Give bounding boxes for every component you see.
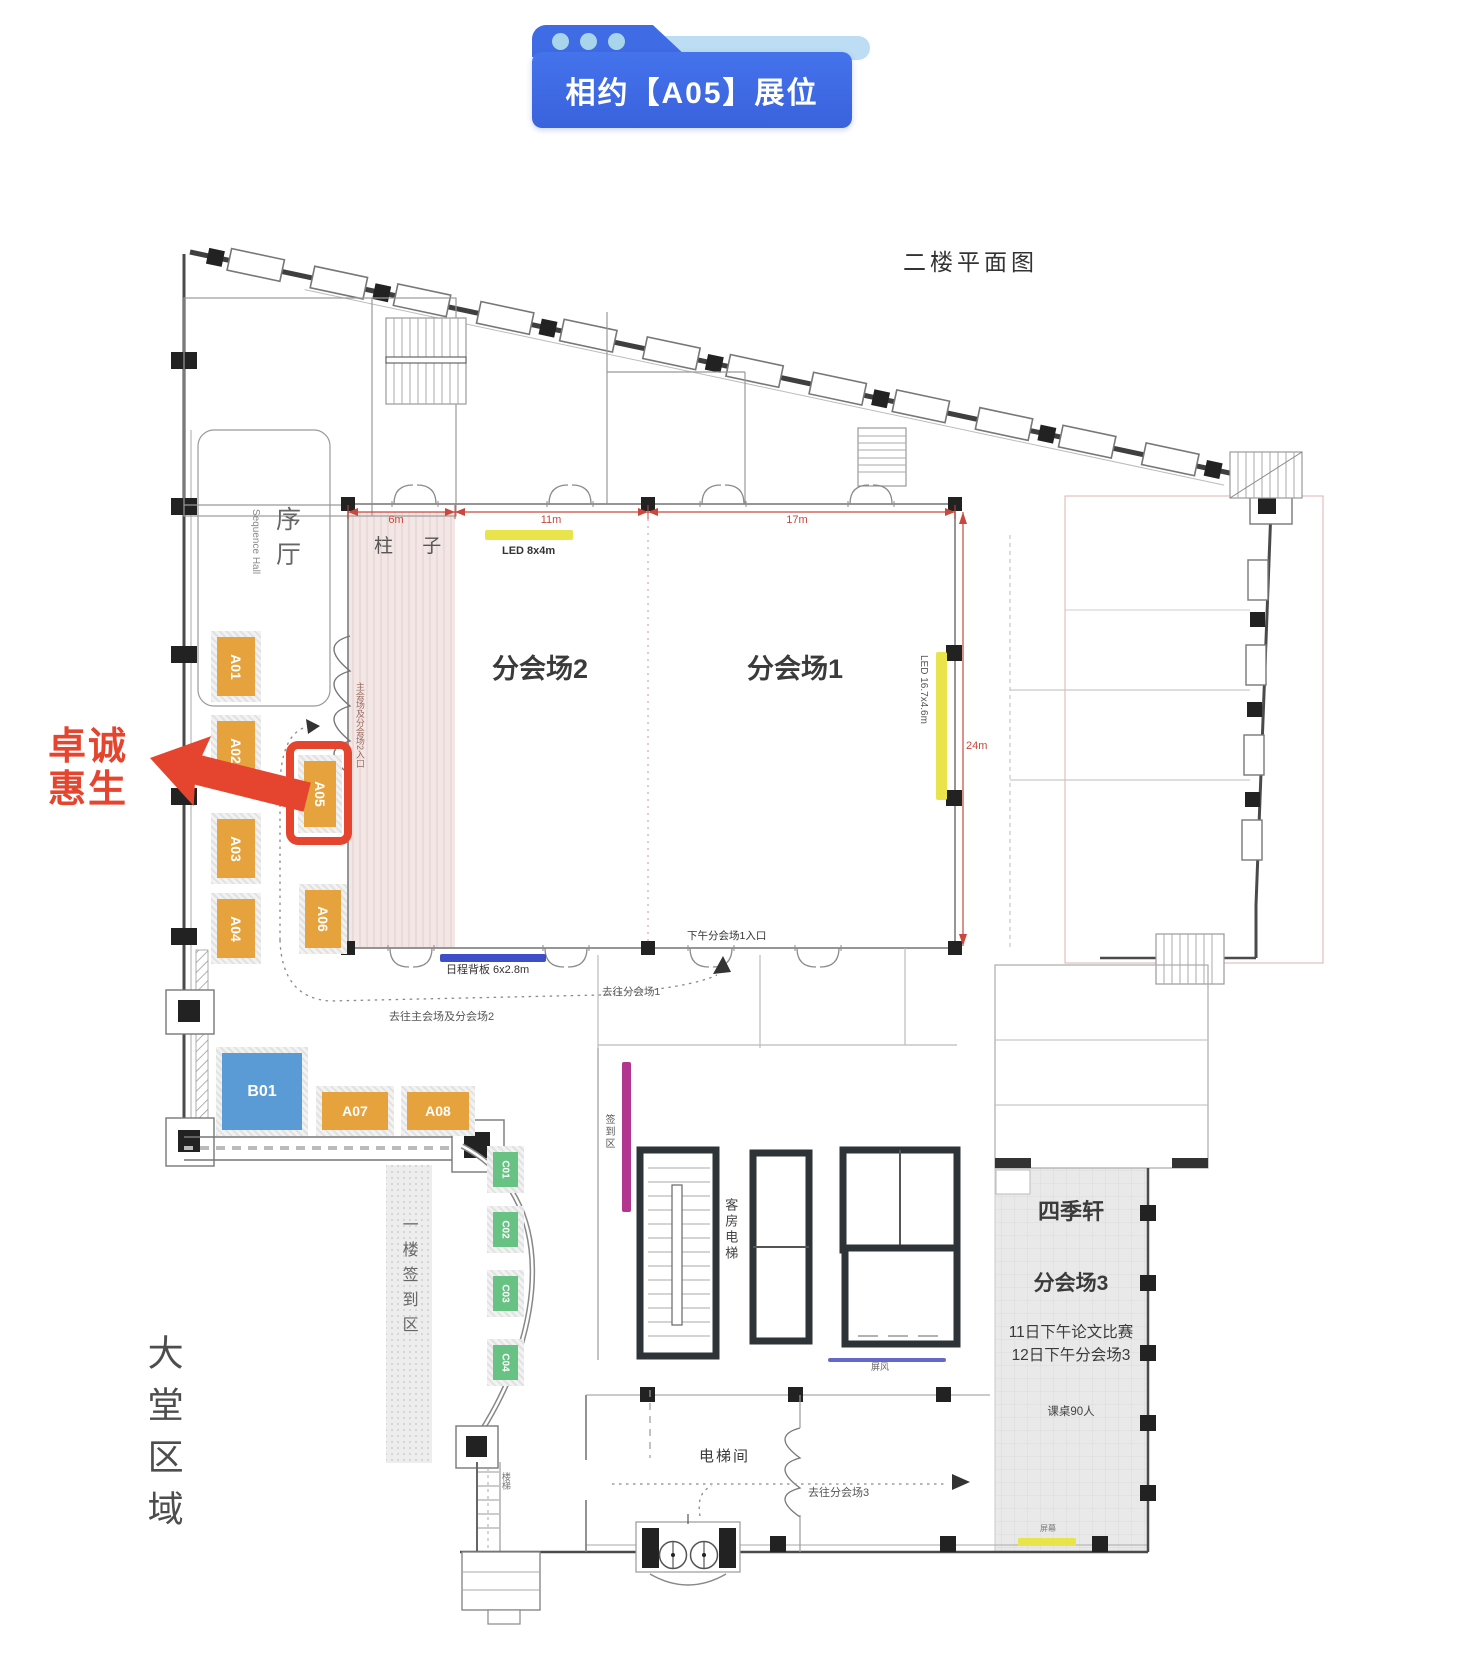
window-dot-icon bbox=[552, 33, 569, 50]
booth-A04: A04 bbox=[211, 893, 261, 964]
elevator-hall-label: 电梯间 bbox=[699, 1449, 750, 1466]
signin-desk-bar bbox=[622, 1062, 631, 1212]
main-hall2-entry-label: 主会场及分会场2入口 bbox=[354, 682, 364, 768]
booth-A07: A07 bbox=[316, 1086, 394, 1136]
left-wall bbox=[166, 254, 214, 1166]
window-dot-icon bbox=[608, 33, 625, 50]
booth-A08: A08 bbox=[401, 1086, 475, 1136]
stairs-topmid bbox=[858, 428, 906, 486]
to-hall1-label: 去往分会场1 bbox=[602, 987, 660, 999]
booth-A03-label: A03 bbox=[228, 836, 244, 862]
booth-A02: A02 bbox=[211, 715, 261, 786]
booth-A01: A01 bbox=[211, 631, 261, 702]
guest-elevator-label: 客房电梯 bbox=[723, 1198, 737, 1262]
led-top-label: LED 8x4m bbox=[502, 545, 555, 557]
header-title-bar: 相约【A05】展位 bbox=[532, 52, 852, 128]
hall3-note1: 11日下午论文比赛 bbox=[1009, 1324, 1134, 1341]
booth-A06-label: A06 bbox=[315, 906, 331, 932]
to-main-hall2-label: 去往主会场及分会场2 bbox=[389, 1011, 494, 1023]
window-dots bbox=[552, 33, 625, 50]
central-core bbox=[598, 948, 957, 1360]
booth-C03-label: C03 bbox=[500, 1284, 511, 1302]
sequence-hall-label: 序厅 bbox=[272, 506, 300, 576]
booth-A04-label: A04 bbox=[228, 916, 244, 942]
revolving-door bbox=[636, 1514, 740, 1585]
screen-bar bbox=[1018, 1538, 1076, 1546]
stairs-label: 楼梯 bbox=[500, 1472, 510, 1490]
header-title: 相约【A05】展位 bbox=[565, 68, 818, 112]
booth-A02-label: A02 bbox=[228, 738, 244, 764]
booth-A03: A03 bbox=[211, 813, 261, 884]
signin-label: 签到区 bbox=[603, 1114, 614, 1150]
booth-A01-label: A01 bbox=[228, 654, 244, 680]
company-name: 卓诚 惠生 bbox=[48, 726, 128, 811]
booth-A08-label: A08 bbox=[425, 1103, 451, 1119]
hall3-desks-label: 课桌90人 bbox=[1047, 1406, 1094, 1419]
siji-pavilion-label: 四季轩 bbox=[1038, 1200, 1104, 1224]
right-wing bbox=[995, 452, 1323, 1168]
schedule-board-bar bbox=[440, 954, 546, 962]
sequence-hall-en-label: Sequence Hall bbox=[250, 509, 261, 574]
header-banner: 相约【A05】展位 bbox=[532, 25, 872, 130]
screen-wall-label: 屏风 bbox=[871, 1363, 889, 1373]
first-floor-signin-label: 一楼签到区 bbox=[399, 1216, 417, 1341]
schedule-board-label: 日程背板 6x2.8m bbox=[446, 964, 529, 976]
pillar-label: 柱 子 bbox=[374, 537, 453, 558]
dim-24m: 24m bbox=[966, 740, 987, 752]
hall1-label: 分会场1 bbox=[747, 655, 843, 685]
booth-C02: C02 bbox=[487, 1206, 524, 1253]
stairs-topleft bbox=[386, 318, 466, 404]
lobby-label: 大堂区域 bbox=[143, 1334, 183, 1542]
hall3-note2: 12日下午分会场3 bbox=[1012, 1347, 1131, 1364]
booth-A06: A06 bbox=[299, 884, 347, 954]
led-screen-top bbox=[485, 530, 573, 540]
booth-B01-label: B01 bbox=[247, 1083, 276, 1101]
plan-title: 二楼平面图 bbox=[903, 250, 1038, 275]
booth-C02-label: C02 bbox=[500, 1220, 511, 1238]
page: A01 A02 A03 A04 A05 A06 A07 A08 B01 C01 … bbox=[0, 0, 1484, 1662]
led-right-label: LED 16.7x4.6m bbox=[918, 655, 929, 724]
hall3-label: 分会场3 bbox=[1034, 1272, 1109, 1295]
diagonal-wall bbox=[187, 240, 1274, 494]
booth-C01: C01 bbox=[487, 1146, 524, 1193]
hall1-entry-label: 下午分会场1入口 bbox=[687, 931, 766, 943]
dim-6m: 6m bbox=[388, 514, 403, 526]
booth-C01-label: C01 bbox=[500, 1160, 511, 1178]
dim-17m: 17m bbox=[786, 514, 807, 526]
company-name-line2: 惠生 bbox=[48, 769, 128, 812]
booth-A07-label: A07 bbox=[342, 1103, 368, 1119]
booth-C03: C03 bbox=[487, 1270, 524, 1317]
led-screen-right bbox=[936, 652, 947, 800]
to-hall3-label: 去往分会场3 bbox=[808, 1487, 869, 1499]
booth-C04: C04 bbox=[487, 1339, 524, 1386]
hall2-label: 分会场2 bbox=[492, 655, 588, 685]
window-dot-icon bbox=[580, 33, 597, 50]
screen-label: 屏幕 bbox=[1040, 1525, 1056, 1534]
highlight-box-A05 bbox=[286, 741, 352, 845]
booth-C04-label: C04 bbox=[500, 1353, 511, 1371]
company-name-line1: 卓诚 bbox=[48, 726, 128, 769]
booth-B01: B01 bbox=[216, 1047, 308, 1136]
dim-11m: 11m bbox=[541, 514, 562, 526]
